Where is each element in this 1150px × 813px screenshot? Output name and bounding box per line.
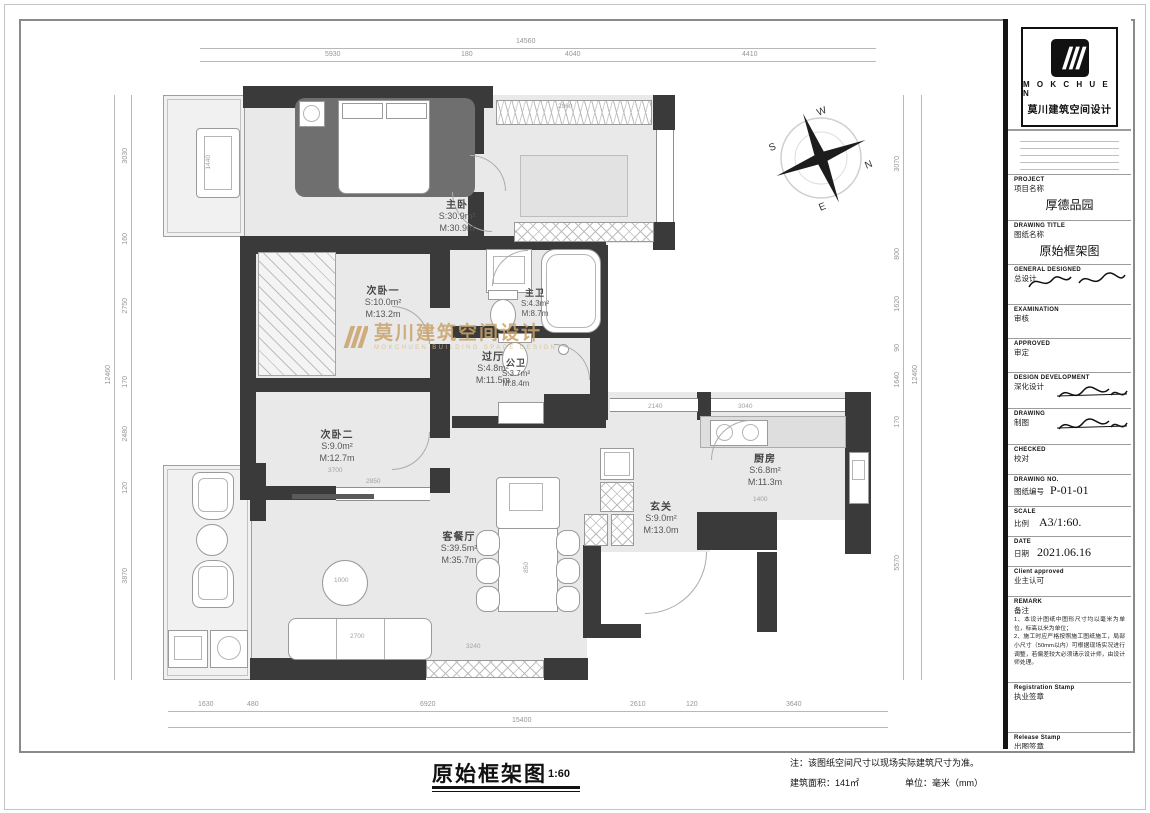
room-area-s: S:10.0m² xyxy=(338,297,428,309)
dim-seg: 800 xyxy=(894,248,901,260)
room-label-entry: 玄关 S:9.0m² M:13.0m xyxy=(625,498,697,536)
dim-seg: 6920 xyxy=(420,701,436,708)
dim-inner: 3040 xyxy=(738,404,752,411)
dim-seg: 3870 xyxy=(122,568,129,584)
dim-seg: 3070 xyxy=(894,156,901,172)
compass-e: E xyxy=(817,201,828,214)
footer-area: 建筑面积：141㎡ xyxy=(790,776,859,789)
room-area-m: M:30.9m xyxy=(415,223,499,235)
dim-inner: 1400 xyxy=(753,497,767,504)
dim-seg: 120 xyxy=(686,701,698,708)
room-name: 公卫 xyxy=(484,356,548,369)
pillow xyxy=(342,103,383,119)
brand-name-en: M O K C H U E N xyxy=(1023,80,1116,98)
fridge-inner xyxy=(604,452,630,476)
room-name: 次卧一 xyxy=(338,282,428,297)
title-block-ruled-section xyxy=(1008,131,1131,175)
footer-unit: 单位：毫米（mm） xyxy=(905,776,983,789)
field-drawing-no: DRAWING NO. 图纸编号 P-01-01 xyxy=(1008,475,1131,507)
wall xyxy=(697,512,777,550)
dim-seg: 5570 xyxy=(894,555,901,571)
dining-chair xyxy=(556,586,580,612)
footer-underline-thick xyxy=(432,786,580,789)
field-label-cn: 图纸名称 xyxy=(1014,229,1125,240)
field-date: DATE 日期 2021.06.16 xyxy=(1008,537,1131,567)
watermark-en: MOKCHUEN BUILDING SPACE DESIGN xyxy=(374,345,557,351)
field-general-designed: GENERAL DESIGNED 总设计 xyxy=(1008,265,1131,305)
field-label-cn: 审核 xyxy=(1014,313,1125,324)
dim-seg: 4040 xyxy=(565,51,581,58)
remark-note-1: 1、本设计图纸中图形尺寸均以毫米为单位，标高以米为单位； xyxy=(1014,616,1125,633)
wall xyxy=(430,236,450,308)
dim-line xyxy=(114,95,115,680)
nightstand-lamp xyxy=(303,105,320,122)
dim-seg: 1630 xyxy=(198,701,214,708)
field-label-cn: 审定 xyxy=(1014,347,1125,358)
footer-underline-thin xyxy=(432,791,580,792)
dim-inner: 1000 xyxy=(334,578,348,585)
dim-total-left: 12460 xyxy=(105,365,112,384)
drawing-title: 原始框架图 xyxy=(1014,242,1125,259)
compass-n: N xyxy=(863,159,874,172)
project-name: 厚德品园 xyxy=(1014,196,1125,213)
scale-value: A3/1:60. xyxy=(1039,515,1081,530)
wall xyxy=(544,394,606,428)
room-label-kitchen: 厨房 S:6.8m² M:11.3m xyxy=(725,450,805,488)
brand-name-cn: 莫川建筑空间设计 xyxy=(1028,101,1112,116)
drawing-number: P-01-01 xyxy=(1050,483,1089,498)
pillow xyxy=(386,103,427,119)
field-scale: SCALE 比例 A3/1:60. xyxy=(1008,507,1131,537)
watermark: 莫川建筑空间设计 MOKCHUEN BUILDING SPACE DESIGN xyxy=(338,322,557,352)
room-area-m: M:35.7m xyxy=(413,555,505,567)
laundry-sink-bowl xyxy=(174,636,202,660)
dim-inner: 850 xyxy=(524,562,531,573)
dim-seg: 170 xyxy=(122,376,129,388)
wall xyxy=(430,344,450,438)
field-label-cn: 出图签章 xyxy=(1014,741,1125,749)
signature xyxy=(1055,383,1129,407)
wall xyxy=(544,658,588,680)
room-area-m: M:13.2m xyxy=(338,309,428,321)
room-area-s: S:3.7m² xyxy=(484,369,548,379)
field-checked: CHECKED 校对 xyxy=(1008,445,1131,475)
field-release-stamp: Release Stamp 出图签章 xyxy=(1008,733,1131,749)
field-examination: EXAMINATION 审核 xyxy=(1008,305,1131,339)
dim-inner: 3240 xyxy=(466,644,480,651)
wall xyxy=(653,95,675,130)
dim-seg: 1620 xyxy=(894,296,901,312)
dim-inner: 2140 xyxy=(648,404,662,411)
island-sink xyxy=(509,483,543,511)
field-label-cn: 备注 xyxy=(1014,605,1125,616)
dim-seg: 5930 xyxy=(325,51,341,58)
field-drawing: DRAWING 制图 xyxy=(1008,409,1131,445)
field-label-cn: 执业签章 xyxy=(1014,691,1125,702)
dim-inner: 2960 xyxy=(558,104,572,111)
field-registration-stamp: Registration Stamp 执业签章 xyxy=(1008,683,1131,733)
sofa-divider xyxy=(336,619,337,659)
balcony-table xyxy=(196,524,228,556)
wall xyxy=(240,236,256,493)
window xyxy=(656,130,674,222)
watermark-cn: 莫川建筑空间设计 xyxy=(374,324,557,343)
room-area-s: S:9.0m² xyxy=(292,441,382,453)
room-name: 主卧 xyxy=(415,196,499,211)
window-hatched xyxy=(426,660,544,678)
watermark-logo-icon xyxy=(338,322,368,352)
room-label-living-dining: 客餐厅 S:39.5m² M:35.7m xyxy=(413,528,505,566)
dining-chair xyxy=(476,586,500,612)
mokchuen-logo-icon xyxy=(1051,39,1089,77)
dim-inner: 2700 xyxy=(350,634,364,641)
compass-s: S xyxy=(767,141,778,154)
wall xyxy=(250,658,426,680)
dim-inner: 1440 xyxy=(206,155,213,169)
field-client-approved: Client approved 业主认可 xyxy=(1008,567,1131,597)
dim-total-bottom: 15400 xyxy=(512,717,531,724)
remark-note-2: 2、施工时应严格按照施工图纸施工，局部小尺寸（50mm以内）可根据现场实况进行调… xyxy=(1014,633,1125,668)
room-area-s: S:30.9m² xyxy=(415,211,499,223)
title-block: M O K C H U E N 莫川建筑空间设计 PROJECT 项目名称 厚德… xyxy=(1003,19,1131,749)
dim-line xyxy=(168,711,888,712)
dim-line xyxy=(168,727,888,728)
dim-seg: 90 xyxy=(894,344,901,352)
dim-seg: 170 xyxy=(894,416,901,428)
dim-line xyxy=(200,61,876,62)
dining-chair xyxy=(556,558,580,584)
wall-tv xyxy=(250,463,266,521)
field-label-cn: 校对 xyxy=(1014,453,1125,464)
room-area-s: S:39.5m² xyxy=(413,543,505,555)
room-area-s: S:4.3m² xyxy=(503,299,567,309)
room-name: 主卫 xyxy=(503,286,567,299)
dim-total-right: 12460 xyxy=(912,365,919,384)
title-block-logo-section: M O K C H U E N 莫川建筑空间设计 xyxy=(1008,19,1131,131)
dim-inner: 2850 xyxy=(366,479,380,486)
window xyxy=(711,398,845,412)
signature xyxy=(1025,269,1129,295)
room-area-m: M:8.4m xyxy=(484,379,548,389)
room-area-m: M:12.7m xyxy=(292,453,382,465)
room-name: 厨房 xyxy=(725,450,805,465)
dim-line xyxy=(921,95,922,680)
field-label-cn: 业主认可 xyxy=(1014,575,1125,586)
room-label-bedroom1: 次卧一 S:10.0m² M:13.2m xyxy=(338,282,428,320)
compass-w: W xyxy=(815,105,828,119)
dim-seg: 2750 xyxy=(122,298,129,314)
dim-seg: 160 xyxy=(122,233,129,245)
field-project: PROJECT 项目名称 厚德品园 xyxy=(1008,175,1131,221)
wardrobe-hanging xyxy=(496,100,652,125)
cabinet xyxy=(514,222,654,242)
dim-seg: 480 xyxy=(247,701,259,708)
drawing-sheet: 主卧 S:30.9m² M:30.9m 次卧一 S:10.0m² M:13.2m… xyxy=(0,0,1150,813)
cabinet xyxy=(584,514,608,546)
tv xyxy=(292,494,374,499)
dim-line xyxy=(131,95,132,680)
bathroom-sink xyxy=(498,402,544,424)
dim-seg: 2610 xyxy=(630,701,646,708)
wall xyxy=(757,552,777,632)
room-label-master-bath: 主卫 S:4.3m² M:8.7m xyxy=(503,286,567,320)
wall xyxy=(653,222,675,250)
room-area-m: M:8.7m xyxy=(503,309,567,319)
field-design-development: DESIGN DEVELOPMENT 深化设计 xyxy=(1008,373,1131,409)
field-drawing-title: DRAWING TITLE 图纸名称 原始框架图 xyxy=(1008,221,1131,265)
footer-scale: 1:60 xyxy=(548,768,570,780)
dim-seg: 3640 xyxy=(786,701,802,708)
kitchen-sink-bowl xyxy=(852,460,865,480)
footer-note: 注：该图纸空间尺寸以现场实际建筑尺寸为准。 xyxy=(790,756,979,769)
wall xyxy=(430,468,450,493)
rug xyxy=(520,155,628,217)
footer-drawing-title: 原始框架图 xyxy=(432,758,547,788)
room-name: 玄关 xyxy=(625,498,697,513)
room-label-bedroom2: 次卧二 S:9.0m² M:12.7m xyxy=(292,426,382,464)
dim-seg: 120 xyxy=(122,482,129,494)
compass-rose: W S N E xyxy=(765,102,877,214)
room-name: 次卧二 xyxy=(292,426,382,441)
field-remark: REMARK 备注 1、本设计图纸中图形尺寸均以毫米为单位，标高以米为单位； 2… xyxy=(1008,597,1131,683)
room-name: 客餐厅 xyxy=(413,528,505,543)
ruled-lines xyxy=(1020,135,1119,175)
dim-seg: 2480 xyxy=(122,426,129,442)
wall xyxy=(583,624,641,638)
field-label-cn: 项目名称 xyxy=(1014,183,1125,194)
dim-total-top: 14560 xyxy=(516,38,535,45)
balcony-chair-seat xyxy=(198,478,228,512)
wall xyxy=(583,545,601,635)
date-value: 2021.06.16 xyxy=(1037,545,1091,560)
room-label-master-bedroom: 主卧 S:30.9m² M:30.9m xyxy=(415,196,499,234)
dim-seg: 1640 xyxy=(894,372,901,388)
dim-line xyxy=(903,95,904,680)
dim-inner: 3700 xyxy=(328,468,342,475)
washing-machine-drum xyxy=(217,636,241,660)
room-area-m: M:11.3m xyxy=(725,477,805,489)
field-label-cn: 图纸编号 xyxy=(1014,486,1044,497)
room-area-s: S:9.0m² xyxy=(625,513,697,525)
room-area-m: M:13.0m xyxy=(625,525,697,537)
wall xyxy=(243,378,430,392)
room-label-guest-bath: 公卫 S:3.7m² M:8.4m xyxy=(484,356,548,390)
sofa-divider xyxy=(384,619,385,659)
balcony-chair-seat xyxy=(198,566,228,600)
room-area-s: S:6.8m² xyxy=(725,465,805,477)
field-label-cn: 日期 xyxy=(1014,548,1029,559)
brand-logo-box: M O K C H U E N 莫川建筑空间设计 xyxy=(1021,27,1118,127)
dim-seg: 180 xyxy=(461,51,473,58)
dim-seg: 4410 xyxy=(742,51,758,58)
dining-chair xyxy=(556,530,580,556)
field-label-cn: 比例 xyxy=(1014,518,1029,529)
signature xyxy=(1055,415,1129,439)
field-approved: APPROVED 审定 xyxy=(1008,339,1131,373)
dim-line xyxy=(200,48,876,49)
dim-seg: 3030 xyxy=(122,148,129,164)
wardrobe xyxy=(258,252,336,376)
